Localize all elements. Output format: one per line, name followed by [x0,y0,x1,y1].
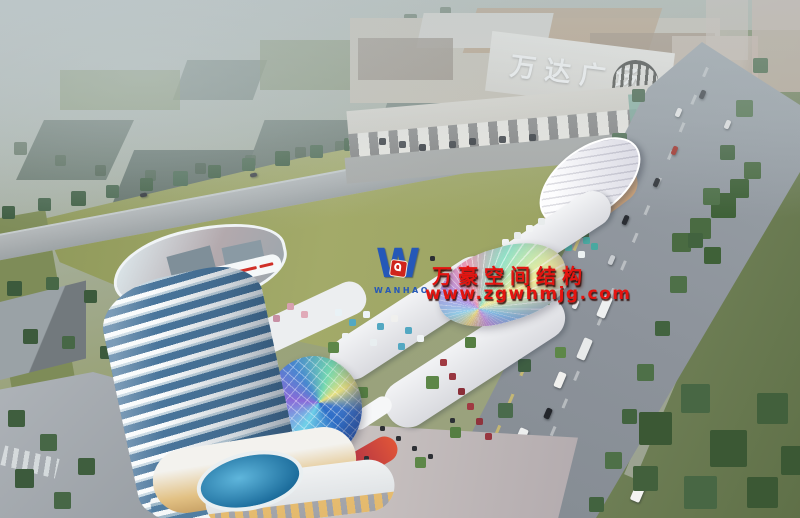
corner-tree-grove [0,0,1,1]
tower-logo-text-mark [259,262,273,268]
aerial-rendering-scene: 万达广场 [0,0,800,518]
watermark-logo: W WANHAO [374,250,430,298]
watermark-logo-name: WANHAO [374,286,430,295]
watermark-website-url: www.zgwhmjg.com [425,284,632,304]
atmospheric-haze [0,0,480,240]
watermark-logo-badge-icon [389,259,408,278]
